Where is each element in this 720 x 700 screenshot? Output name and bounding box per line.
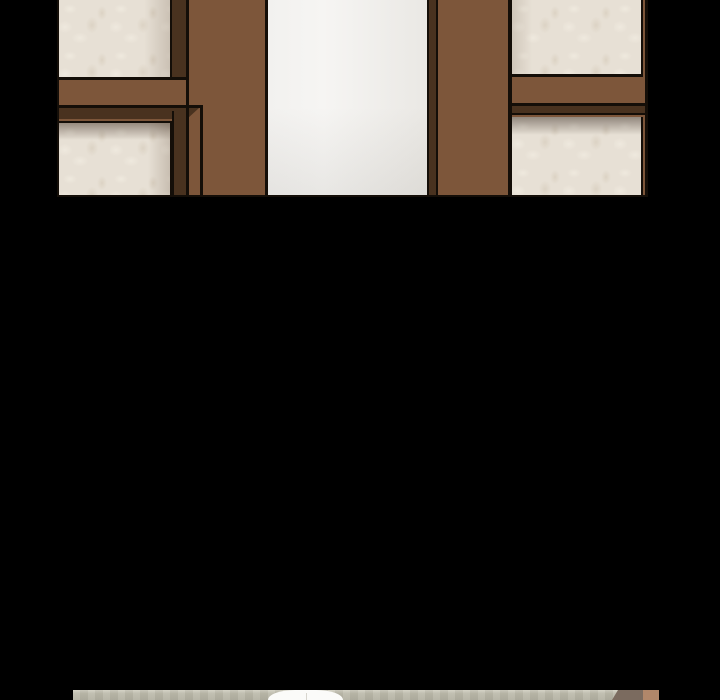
frame-outline: [200, 105, 203, 195]
wood-shape-taupe: [612, 690, 643, 700]
doorway-return-edge: [427, 0, 438, 195]
wallpaper-insert-lower-left: [59, 121, 172, 195]
doorway-opening: [268, 0, 427, 195]
wood-shape-tan: [643, 690, 659, 700]
webtoon-viewer[interactable]: [0, 0, 720, 700]
frame-bevel-lower-left-side: [172, 111, 186, 195]
frame-bevel-lower-right-top: [512, 106, 645, 115]
panel-shading: [144, 0, 170, 77]
frame-bevel-upper-left: [172, 0, 186, 78]
comic-panel-next-peek: [73, 690, 659, 700]
panel-shading: [512, 117, 641, 135]
wallpaper-insert-lower-right: [512, 117, 643, 195]
panel-shading: [148, 123, 170, 195]
wallpaper-insert-upper-left: [59, 0, 172, 77]
frame-outline: [186, 0, 189, 195]
frame-outline: [59, 105, 201, 108]
comic-panel-wall-doorway: [57, 0, 648, 197]
speech-bubble-top: [268, 690, 343, 700]
wallpaper-insert-upper-right: [512, 0, 643, 77]
panel-shading: [512, 0, 532, 74]
frame-outline: [59, 77, 189, 80]
bubble-crease-line: [306, 693, 307, 700]
